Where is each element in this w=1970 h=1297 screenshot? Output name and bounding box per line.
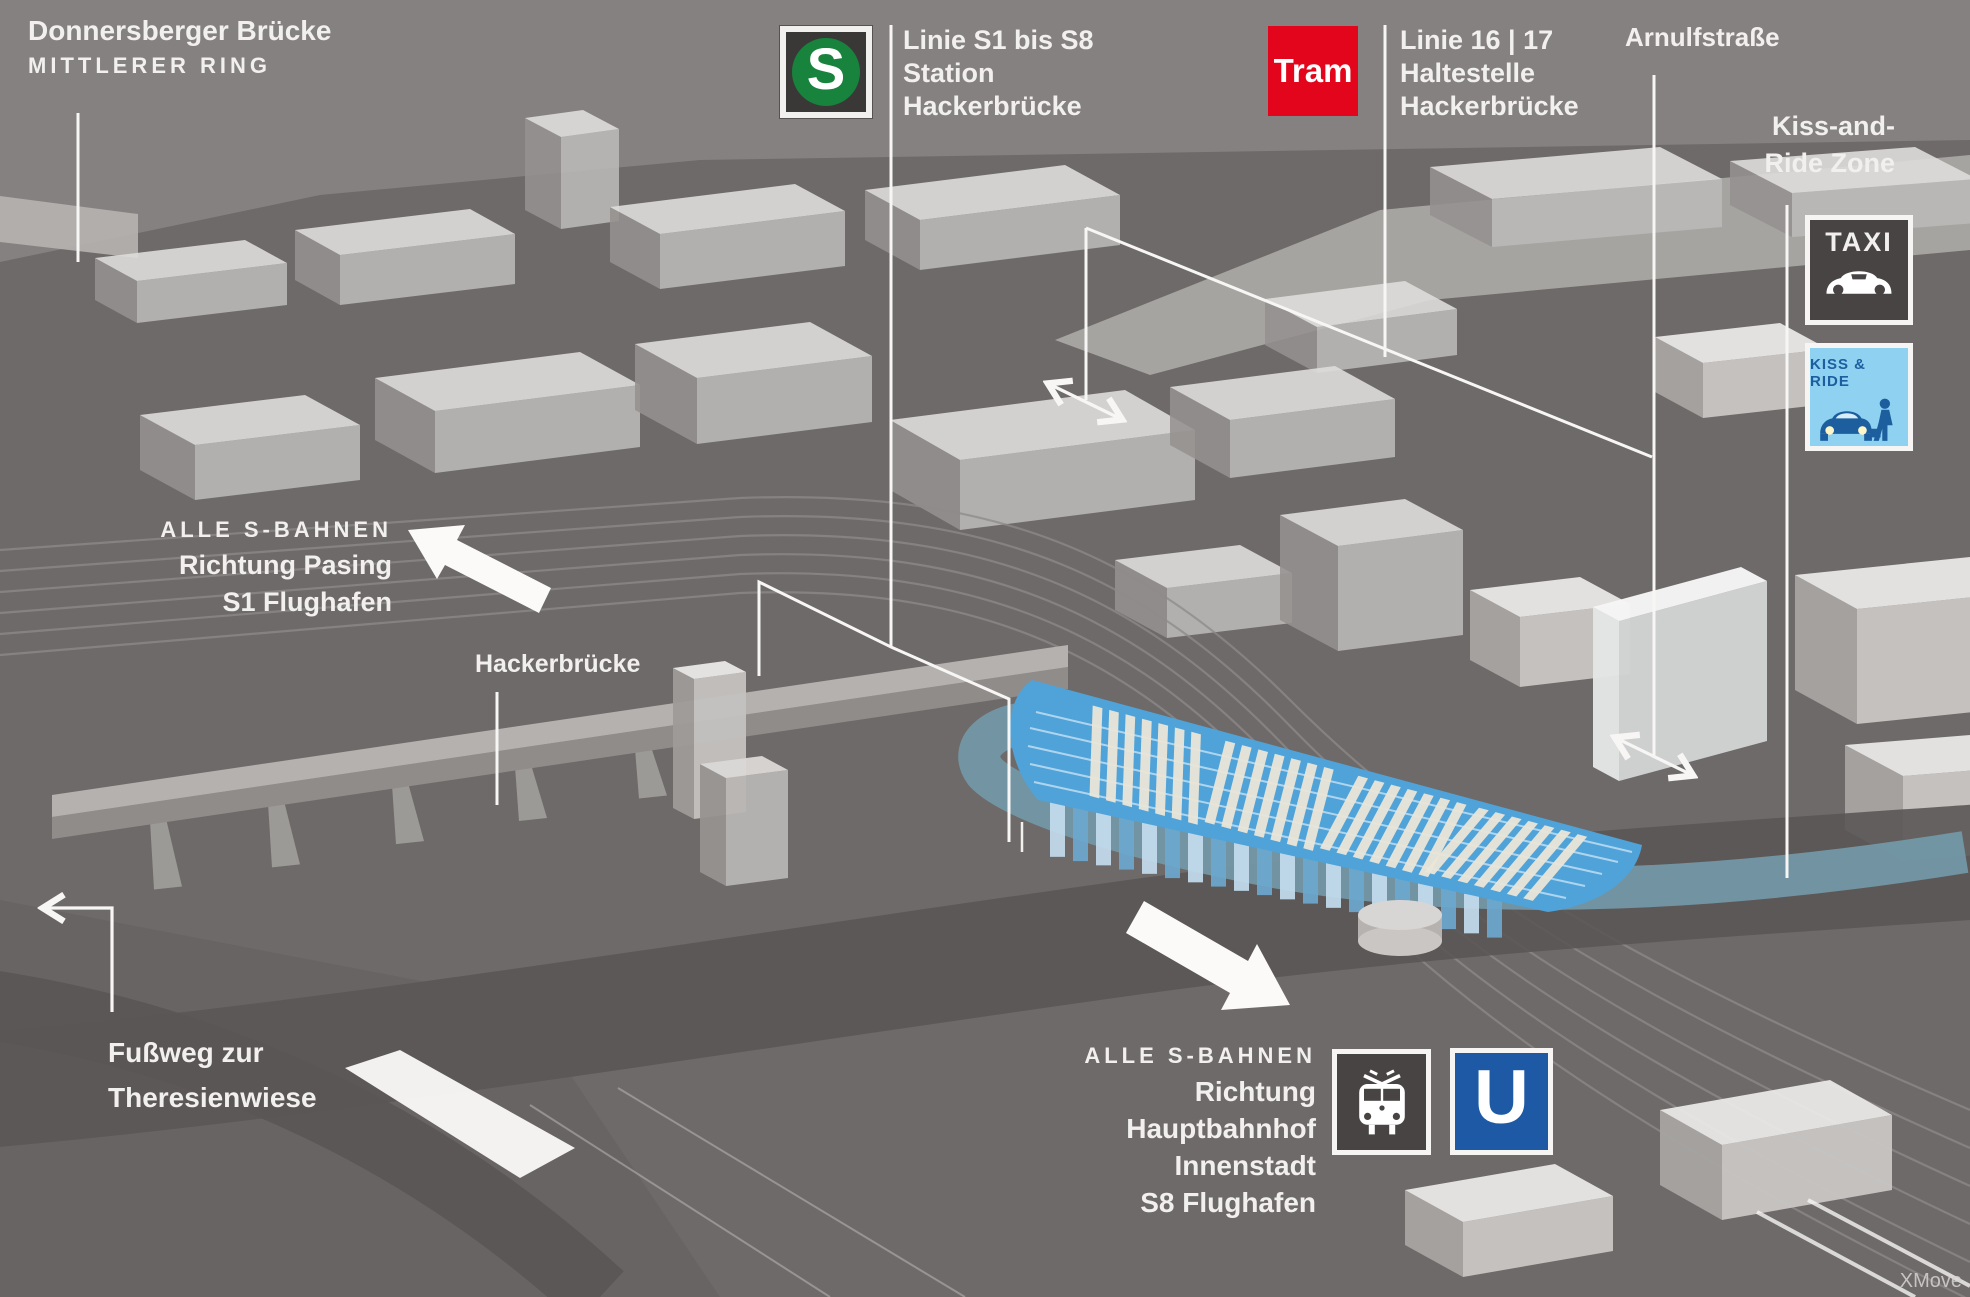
- label-arnulfstrasse: Arnulfstraße: [1625, 22, 1780, 53]
- train-icon: [1346, 1062, 1418, 1142]
- sbahn-west-line2: S1 Flughafen: [52, 584, 392, 621]
- sbahn-station-word: Station: [903, 57, 1094, 90]
- taxi-sign: TAXI: [1805, 215, 1913, 325]
- sbahn-west-line1: Richtung Pasing: [52, 547, 392, 584]
- tram-line-info: Linie 16 | 17: [1400, 24, 1579, 57]
- tram-stop-word: Haltestelle: [1400, 57, 1579, 90]
- tram-logo-icon: Tram: [1268, 26, 1358, 116]
- s-bahn-logo-icon: S: [780, 26, 872, 118]
- tram-word: Tram: [1274, 52, 1353, 90]
- sbahn-west-heading: ALLE S-BAHNEN: [52, 516, 392, 544]
- label-kiss-and-ride: Kiss-and- Ride Zone: [1764, 108, 1895, 182]
- sbahn-station-name: Hackerbrücke: [903, 90, 1094, 123]
- label-donnersberger: Donnersberger Brücke MITTLERER RING: [28, 14, 331, 80]
- label-tram-stop: Linie 16 | 17 Haltestelle Hackerbrücke: [1400, 24, 1579, 123]
- sbahn-train-icon-sign: [1332, 1049, 1431, 1155]
- donnersberger-title: Donnersberger Brücke: [28, 14, 331, 48]
- hackerbruecke-transit-map: Donnersberger Brücke MITTLERER RING S Li…: [0, 0, 1970, 1297]
- kiss-and-ride-sign: KISS & RIDE: [1805, 343, 1913, 451]
- label-sbahn-west: ALLE S-BAHNEN Richtung Pasing S1 Flughaf…: [52, 516, 392, 621]
- kiss-ride-line2: Ride Zone: [1764, 145, 1895, 182]
- sbahn-east-line4: S8 Flughafen: [896, 1184, 1316, 1221]
- donnersberger-subtitle: MITTLERER RING: [28, 52, 331, 80]
- label-sbahn-station: Linie S1 bis S8 Station Hackerbrücke: [903, 24, 1094, 123]
- label-sbahn-east: ALLE S-BAHNEN Richtung Hauptbahnhof Inne…: [896, 1042, 1316, 1221]
- sbahn-east-line1: Richtung: [896, 1073, 1316, 1110]
- taxi-word: TAXI: [1825, 227, 1893, 258]
- sbahn-line-info: Linie S1 bis S8: [903, 24, 1094, 57]
- kiss-ride-word: KISS & RIDE: [1810, 356, 1908, 390]
- s-bahn-letter: S: [807, 41, 846, 99]
- sbahn-east-line3: Innenstadt: [896, 1147, 1316, 1184]
- s-bahn-green-circle: S: [792, 38, 860, 106]
- kiss-ride-line1: Kiss-and-: [1764, 108, 1895, 145]
- taxi-car-icon: [1820, 262, 1898, 302]
- watermark: XMove: [1900, 1270, 1962, 1293]
- sbahn-east-line2: Hauptbahnhof: [896, 1110, 1316, 1147]
- zob-cylinder: [1358, 900, 1442, 956]
- sbahn-east-heading: ALLE S-BAHNEN: [896, 1042, 1316, 1070]
- kiss-ride-car-person-icon: [1812, 396, 1906, 446]
- u-bahn-logo-icon: U: [1450, 1048, 1553, 1155]
- label-footpath: Fußweg zur Theresienwiese: [108, 1030, 317, 1120]
- footpath-line1: Fußweg zur: [108, 1030, 317, 1075]
- footpath-line2: Theresienwiese: [108, 1075, 317, 1120]
- u-bahn-letter: U: [1474, 1060, 1529, 1136]
- label-bridge: Hackerbrücke: [475, 650, 640, 679]
- tram-stop-name: Hackerbrücke: [1400, 90, 1579, 123]
